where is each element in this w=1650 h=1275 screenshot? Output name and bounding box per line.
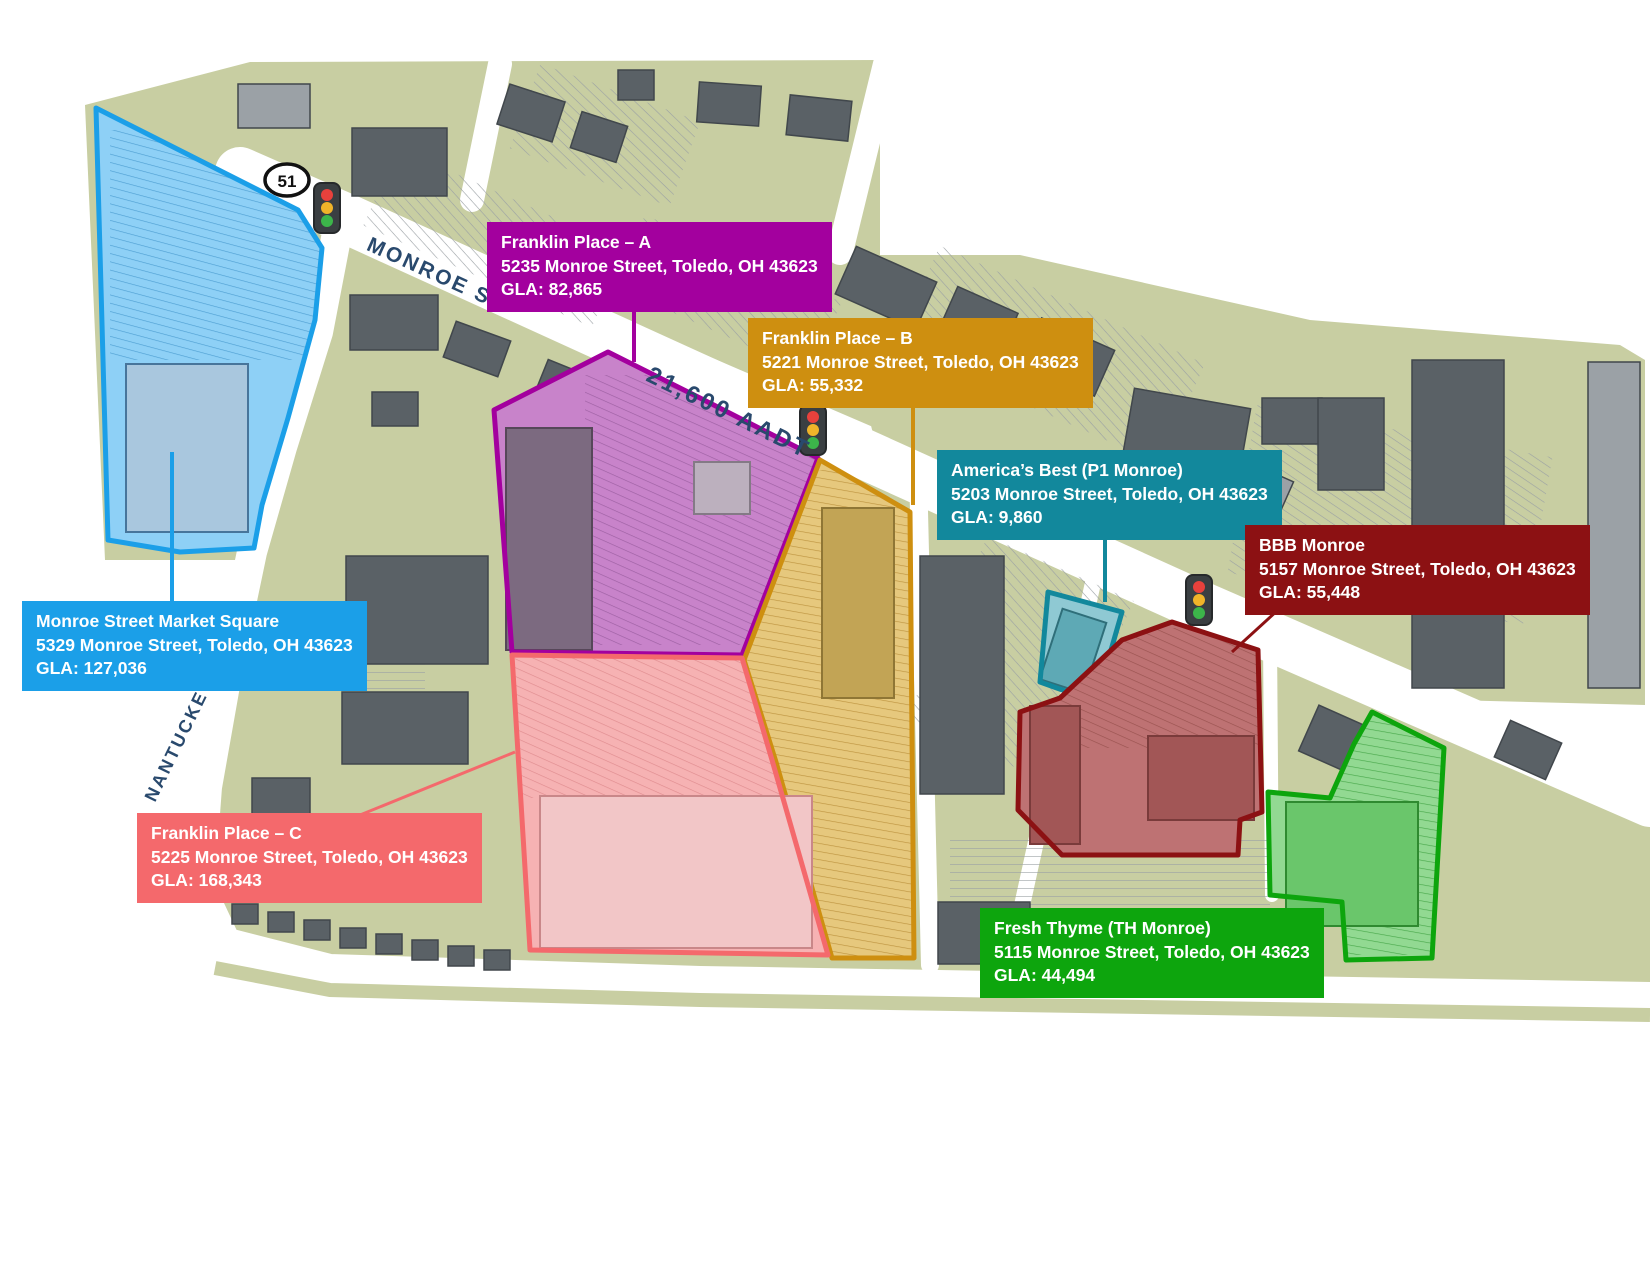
parcel-gla: GLA: 9,860 [951,506,1268,530]
parcel-address: 5225 Monroe Street, Toledo, OH 43623 [151,846,468,870]
parcel-name: Fresh Thyme (TH Monroe) [994,917,1310,941]
parcel-address: 5203 Monroe Street, Toledo, OH 43623 [951,483,1268,507]
parcel-address: 5115 Monroe Street, Toledo, OH 43623 [994,941,1310,965]
parcel-label-franklin-place-c[interactable]: Franklin Place – C 5225 Monroe Street, T… [137,813,482,903]
route-51-marker: 51 [265,164,309,196]
parcel-label-monroe-street-market-square[interactable]: Monroe Street Market Square 5329 Monroe … [22,601,367,691]
parcel-gla: GLA: 55,332 [762,374,1079,398]
parcel-address: 5235 Monroe Street, Toledo, OH 43623 [501,255,818,279]
parcel-name: Franklin Place – B [762,327,1079,351]
parcel-gla: GLA: 127,036 [36,657,353,681]
traffic-light-icon [1186,575,1212,625]
parcel-name: America’s Best (P1 Monroe) [951,459,1268,483]
parcel-name: BBB Monroe [1259,534,1576,558]
parcel-gla: GLA: 82,865 [501,278,818,302]
parcel-gla: GLA: 44,494 [994,964,1310,988]
parcel-label-fresh-thyme[interactable]: Fresh Thyme (TH Monroe) 5115 Monroe Stre… [980,908,1324,998]
parcel-gla: GLA: 168,343 [151,869,468,893]
parcel-name: Franklin Place – C [151,822,468,846]
parcel-label-franklin-place-a[interactable]: Franklin Place – A 5235 Monroe Street, T… [487,222,832,312]
parcel-address: 5329 Monroe Street, Toledo, OH 43623 [36,634,353,658]
parcel-label-americas-best[interactable]: America’s Best (P1 Monroe) 5203 Monroe S… [937,450,1282,540]
parcel-name: Franklin Place – A [501,231,818,255]
parcel-label-franklin-place-b[interactable]: Franklin Place – B 5221 Monroe Street, T… [748,318,1093,408]
parcel-address: 5157 Monroe Street, Toledo, OH 43623 [1259,558,1576,582]
site-plan-map: 51 MONROE ST 21,600 AADT NANTUCKETT DR M… [0,0,1650,1275]
parcel-name: Monroe Street Market Square [36,610,353,634]
traffic-light-icon [314,183,340,233]
route-51-number: 51 [278,172,297,191]
parcel-label-bbb-monroe[interactable]: BBB Monroe 5157 Monroe Street, Toledo, O… [1245,525,1590,615]
parcel-gla: GLA: 55,448 [1259,581,1576,605]
parcel-address: 5221 Monroe Street, Toledo, OH 43623 [762,351,1079,375]
